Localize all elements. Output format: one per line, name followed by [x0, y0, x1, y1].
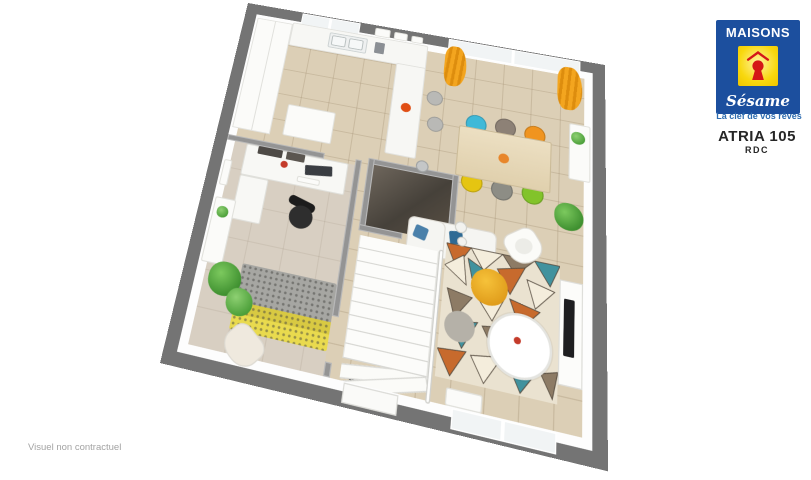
disclaimer-text: Visuel non contractuel: [28, 442, 121, 453]
logo-text-sesame: Sésame: [726, 92, 790, 110]
coffee-machine: [374, 42, 385, 55]
plan-model-title: ATRIA 105: [690, 128, 811, 145]
tv-screen: [563, 299, 575, 359]
logo-text-maisons: MAISONS: [726, 25, 790, 40]
brand-logo: MAISONS Sésame: [716, 20, 802, 114]
logo-tagline: La clef de vos rêves: [699, 111, 811, 121]
plan-floor-label: RDC: [690, 145, 811, 155]
keyhole-icon: [738, 46, 778, 86]
floor-plan-3d: [160, 3, 608, 471]
computer-monitor: [305, 165, 332, 177]
logo-blue-square: MAISONS Sésame: [716, 20, 800, 114]
